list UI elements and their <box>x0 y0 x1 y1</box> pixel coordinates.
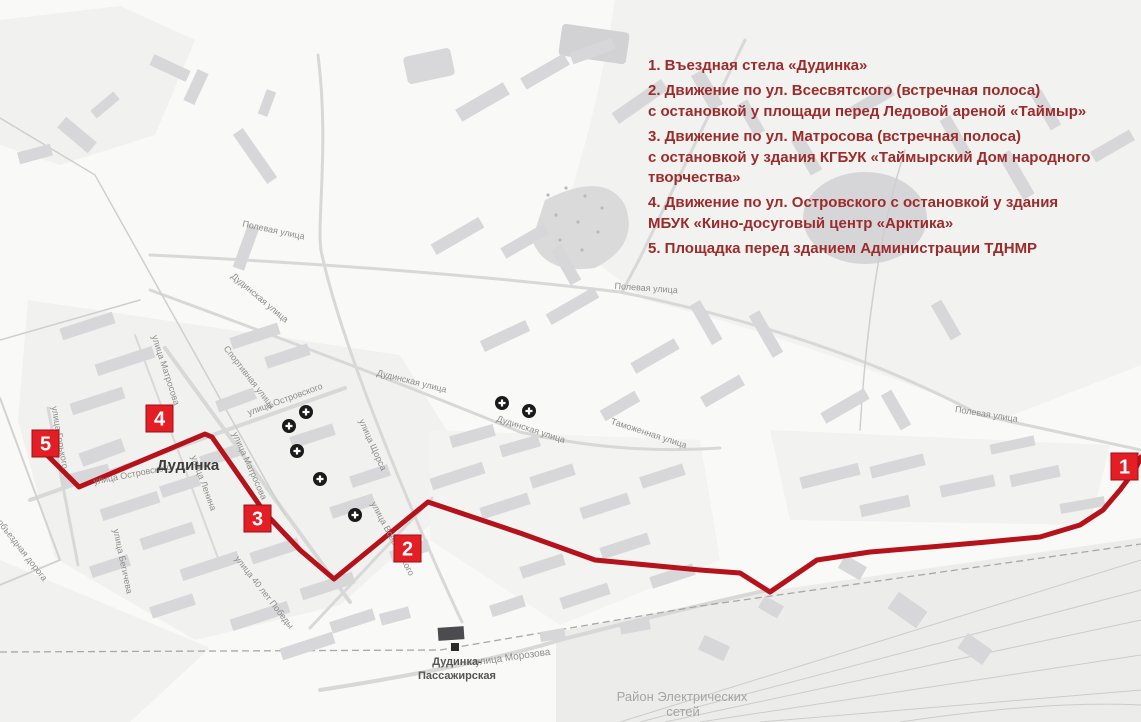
route-map-page: Полевая улицаПолевая улицаПолевая улицаД… <box>0 0 1141 722</box>
building <box>379 606 411 625</box>
stop-marker-number: 1 <box>1119 457 1130 479</box>
building <box>431 217 485 255</box>
building <box>600 391 641 421</box>
building <box>489 595 526 617</box>
building <box>630 338 679 373</box>
stop-marker-number: 2 <box>402 539 413 561</box>
building <box>700 375 745 408</box>
building <box>881 390 911 431</box>
legend-item-5: 5. Площадка перед зданием Администрации … <box>648 239 1141 259</box>
stop-marker-number: 4 <box>154 409 166 431</box>
building <box>258 89 276 117</box>
legend-item-4: 4. Движение по ул. Островского с останов… <box>648 193 1141 234</box>
street-label: улица Морозова <box>474 647 551 669</box>
route-legend: 1. Въездная стела «Дудинка» 2. Движение … <box>648 56 1141 265</box>
building <box>279 632 335 660</box>
street-label: Дудинская улица <box>229 271 290 325</box>
legend-item-3: 3. Движение по ул. Матросова (встречная … <box>648 127 1141 188</box>
railway-station <box>438 626 465 651</box>
legend-item-2: 2. Движение по ул. Всесвятского (встречн… <box>648 81 1141 122</box>
station-name-line1: Дудинка- <box>432 656 482 668</box>
station-name-line2: Пассажирская <box>418 670 496 682</box>
stop-marker-number: 5 <box>40 434 51 456</box>
legend-item-1: 1. Въездная стела «Дудинка» <box>648 56 1141 76</box>
stop-marker-number: 3 <box>252 509 263 531</box>
building <box>455 82 510 122</box>
building <box>233 128 277 184</box>
building <box>480 320 530 352</box>
building <box>520 53 570 89</box>
area-name-line2: сетей <box>666 704 700 719</box>
building <box>329 608 376 633</box>
city-name-label: Дудинка <box>157 457 220 474</box>
area-name-line1: Район Электрических <box>617 689 748 704</box>
building <box>546 287 600 325</box>
